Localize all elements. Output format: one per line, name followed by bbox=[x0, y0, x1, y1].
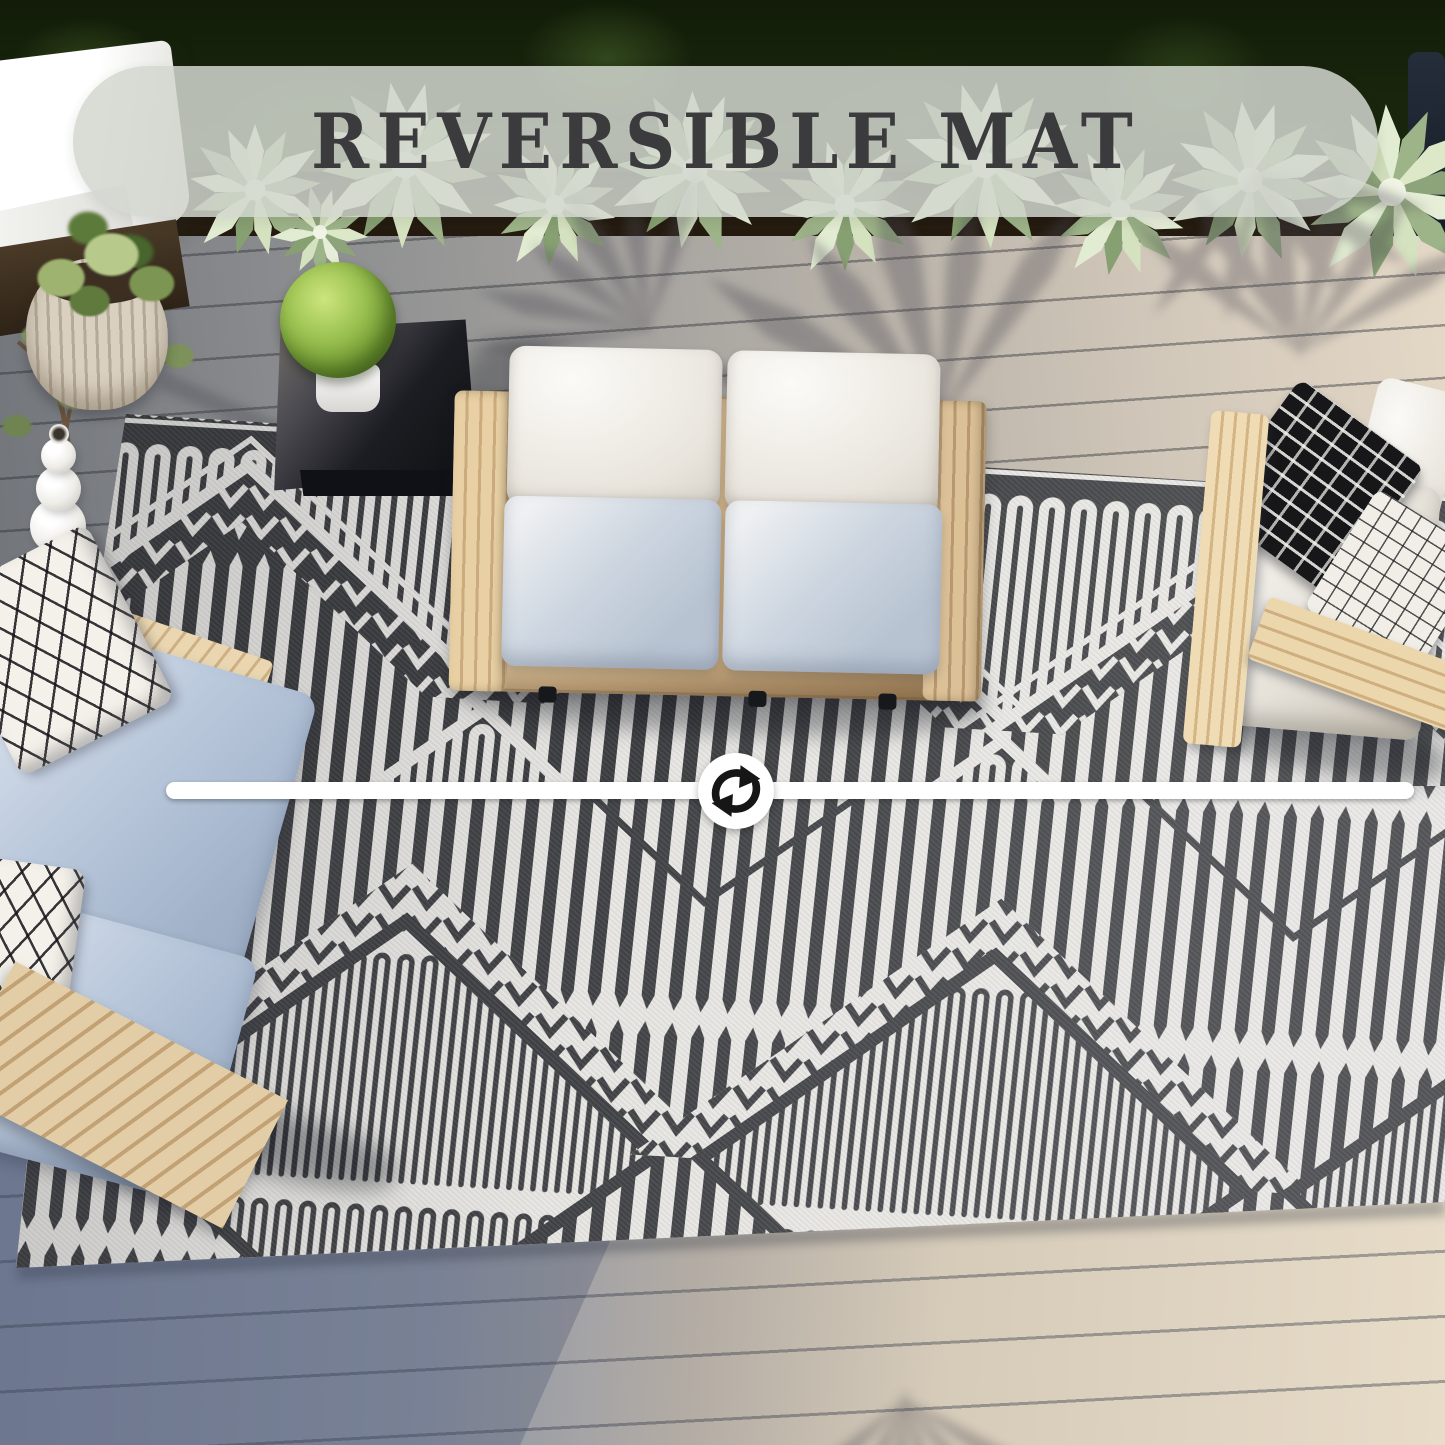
left-sofa bbox=[0, 545, 352, 1205]
swap-arrows-icon bbox=[698, 753, 774, 829]
reversible-divider-bar bbox=[166, 782, 1414, 799]
swap-circle-badge bbox=[698, 753, 774, 829]
cube-side-table-front bbox=[300, 470, 470, 496]
loveseat bbox=[448, 344, 987, 717]
banner-title: REVERSIBLE MAT bbox=[311, 97, 1140, 186]
loveseat-foot bbox=[878, 693, 896, 709]
loveseat-seat-cushion bbox=[722, 500, 943, 675]
loveseat-foot bbox=[748, 691, 766, 707]
topiary-ball bbox=[280, 262, 396, 378]
loveseat-seat-cushion bbox=[501, 496, 722, 671]
loveseat-foot bbox=[538, 686, 556, 702]
product-photo-reversible-mat: REVERSIBLE MAT bbox=[0, 0, 1445, 1445]
banner: REVERSIBLE MAT bbox=[73, 66, 1378, 217]
loveseat-back-cushion bbox=[724, 350, 940, 514]
loveseat-back-cushion bbox=[506, 346, 722, 510]
right-armchair bbox=[1183, 386, 1445, 782]
